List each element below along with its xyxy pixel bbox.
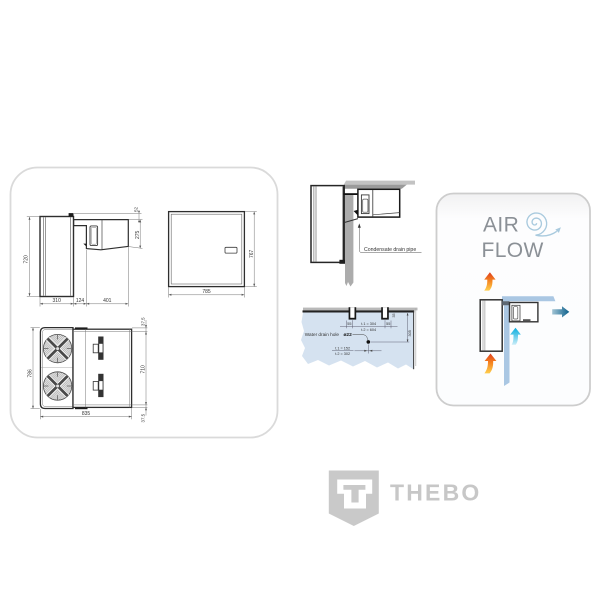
svg-text:Water drain hole: Water drain hole (305, 332, 340, 337)
svg-text:767: 767 (249, 249, 255, 258)
svg-text:Condensate drain pipe: Condensate drain pipe (364, 247, 416, 253)
svg-text:786: 786 (27, 369, 33, 378)
svg-text:310: 310 (53, 298, 62, 304)
svg-text:785: 785 (202, 289, 211, 295)
svg-text:835: 835 (82, 411, 91, 417)
svg-text:35: 35 (392, 314, 396, 318)
svg-text:55: 55 (347, 322, 351, 326)
svg-text:37.5: 37.5 (140, 413, 145, 422)
svg-text:t.1 = 152: t.1 = 152 (335, 346, 350, 350)
svg-text:t.2 = 604: t.2 = 604 (361, 328, 376, 332)
svg-text:AIR: AIR (483, 213, 519, 236)
svg-text:275: 275 (135, 230, 141, 239)
svg-text:720: 720 (24, 255, 30, 264)
svg-text:FLOW: FLOW (482, 239, 544, 262)
svg-text:ø22: ø22 (344, 332, 353, 338)
svg-text:t.1 = 304: t.1 = 304 (361, 322, 376, 326)
svg-text:55: 55 (386, 322, 390, 326)
svg-text:37.5: 37.5 (140, 317, 145, 326)
svg-text:THEBO: THEBO (390, 480, 482, 506)
svg-text:t.2 = 302: t.2 = 302 (335, 352, 350, 356)
svg-text:124: 124 (76, 298, 85, 304)
svg-text:52: 52 (134, 206, 139, 212)
svg-text:305: 305 (408, 330, 412, 336)
svg-text:710: 710 (141, 365, 147, 374)
svg-text:401: 401 (103, 298, 112, 304)
